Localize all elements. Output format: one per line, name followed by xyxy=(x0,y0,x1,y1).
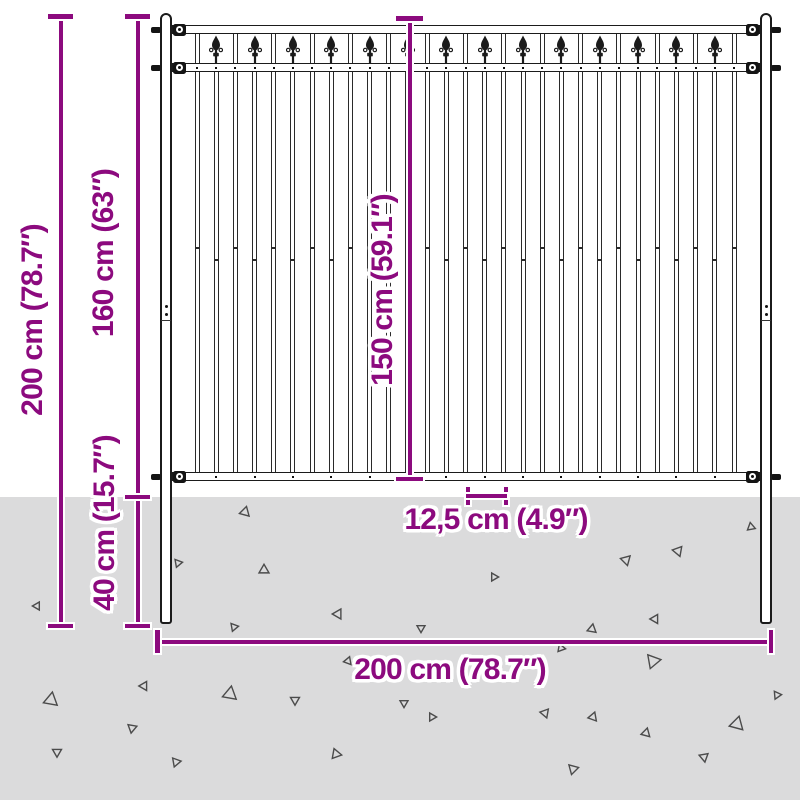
left-post xyxy=(160,13,172,624)
post-hole xyxy=(765,305,768,308)
picket-joint xyxy=(521,259,526,261)
picket-joint xyxy=(290,259,295,261)
picket-joint xyxy=(252,259,257,261)
rail-rivet xyxy=(560,476,562,478)
picket-joint xyxy=(732,247,737,249)
rail-rivet xyxy=(618,67,620,69)
dim-total-height-label: 200 cm (78.7″) xyxy=(18,224,48,416)
main-picket xyxy=(732,34,737,474)
spear-picket xyxy=(597,63,602,474)
rail-rivet xyxy=(695,67,697,69)
post-bracket xyxy=(746,24,759,36)
spear-picket xyxy=(521,63,526,474)
dim-cap xyxy=(125,14,150,19)
spear-picket xyxy=(290,63,295,474)
rail-rivet xyxy=(445,67,447,69)
fence-dimension-diagram: 200 cm (78.7″) 160 cm (63″) 40 cm (15.7″… xyxy=(0,0,800,800)
rail-rivet xyxy=(254,476,256,478)
main-picket xyxy=(693,34,698,474)
rail-rivet xyxy=(656,67,658,69)
main-picket xyxy=(425,34,430,474)
rail-rivet xyxy=(369,476,371,478)
picket-joint xyxy=(233,247,238,249)
spear-finial xyxy=(593,35,607,65)
rail-rivet xyxy=(580,67,582,69)
rail-rivet xyxy=(637,476,639,478)
main-picket xyxy=(540,34,545,474)
spear-finial xyxy=(286,35,300,65)
dim-picket-spacing-label: 12,5 cm (4.9″) xyxy=(404,505,587,535)
spear-picket xyxy=(674,63,679,474)
post-bracket xyxy=(746,471,759,483)
spear-finial xyxy=(248,35,262,65)
picket-joint xyxy=(444,259,449,261)
top-rail xyxy=(172,25,760,34)
picket-joint xyxy=(425,247,430,249)
main-picket xyxy=(310,34,315,474)
picket-joint xyxy=(310,247,315,249)
picket-joint xyxy=(559,259,564,261)
picket-joint xyxy=(693,247,698,249)
picket-joint xyxy=(214,259,219,261)
spear-finial xyxy=(669,35,683,65)
bolt-stub xyxy=(771,27,781,33)
bracket-bolt xyxy=(749,473,756,480)
bracket-bolt xyxy=(176,64,183,71)
spear-finial xyxy=(324,35,338,65)
main-picket xyxy=(578,34,583,474)
picket-joint xyxy=(712,259,717,261)
spear-finial xyxy=(363,35,377,65)
spear-finial xyxy=(708,35,722,65)
bolt-stub xyxy=(771,474,781,480)
bracket-bolt xyxy=(749,64,756,71)
bracket-bolt xyxy=(176,473,183,480)
main-picket xyxy=(233,34,238,474)
spear-picket xyxy=(214,63,219,474)
spear-picket xyxy=(482,63,487,474)
rail-rivet xyxy=(484,476,486,478)
rail-rivet xyxy=(292,67,294,69)
spear-finial xyxy=(209,35,223,65)
dim-cap xyxy=(155,630,160,653)
post-bracket xyxy=(746,62,759,74)
picket-joint xyxy=(271,247,276,249)
rail-rivet xyxy=(484,67,486,69)
rail-rivet xyxy=(234,67,236,69)
spear-picket xyxy=(252,63,257,474)
picket-joint xyxy=(501,247,506,249)
post-hole xyxy=(165,313,168,316)
picket-joint xyxy=(597,259,602,261)
rail-rivet xyxy=(599,476,601,478)
picket-joint xyxy=(616,247,621,249)
spear-picket xyxy=(712,63,717,474)
bracket-bolt xyxy=(176,26,183,33)
rail-rivet xyxy=(503,67,505,69)
dim-cap xyxy=(396,16,423,21)
spear-finial xyxy=(516,35,530,65)
dim-above-ground-label: 160 cm (63″) xyxy=(89,169,119,337)
dim-cap xyxy=(125,624,150,629)
spear-finial xyxy=(478,35,492,65)
rail-rivet xyxy=(426,67,428,69)
dim-cap xyxy=(48,14,73,19)
rail-rivet xyxy=(714,476,716,478)
rail-rivet xyxy=(215,67,217,69)
main-picket xyxy=(271,34,276,474)
dim-panel-height-label: 150 cm (59.1″) xyxy=(368,194,398,386)
post-hole xyxy=(765,313,768,316)
rail-rivet xyxy=(599,67,601,69)
post-seam xyxy=(761,320,771,321)
dim-picket-spacing-line xyxy=(466,494,507,498)
rail-rivet xyxy=(311,67,313,69)
rail-rivet xyxy=(733,67,735,69)
post-bracket xyxy=(173,24,186,36)
main-picket xyxy=(463,34,468,474)
spear-picket xyxy=(559,63,564,474)
picket-joint xyxy=(540,247,545,249)
rail-rivet xyxy=(388,67,390,69)
dim-above-below-line xyxy=(136,14,140,628)
spear-picket xyxy=(636,63,641,474)
dim-total-width-label: 200 cm (78.7″) xyxy=(354,655,546,685)
rail-rivet xyxy=(273,67,275,69)
rail-rivet xyxy=(196,67,198,69)
picket-joint xyxy=(636,259,641,261)
rail-rivet xyxy=(330,67,332,69)
dim-total-height-line xyxy=(59,14,63,628)
rail-rivet xyxy=(254,67,256,69)
rail-rivet xyxy=(445,476,447,478)
main-picket xyxy=(655,34,660,474)
rail-rivet xyxy=(369,67,371,69)
picket-joint xyxy=(348,247,353,249)
picket-joint xyxy=(655,247,660,249)
spear-finial xyxy=(439,35,453,65)
spear-finial xyxy=(554,35,568,65)
right-post xyxy=(760,13,772,624)
post-bracket xyxy=(173,471,186,483)
rail-rivet xyxy=(522,476,524,478)
post-bracket xyxy=(173,62,186,74)
bolt-stub xyxy=(771,65,781,71)
post-seam xyxy=(161,320,171,321)
main-picket xyxy=(195,34,200,474)
rail-rivet xyxy=(349,67,351,69)
dim-total-width-line xyxy=(157,640,772,644)
dim-below-ground-label: 40 cm (15.7″) xyxy=(90,435,120,611)
rail-rivet xyxy=(675,476,677,478)
bottom-rail xyxy=(172,472,760,481)
rail-rivet xyxy=(522,67,524,69)
rail-rivet xyxy=(541,67,543,69)
dim-panel-height-line xyxy=(408,16,412,481)
picket-joint xyxy=(674,259,679,261)
main-picket xyxy=(348,34,353,474)
rail-rivet xyxy=(292,476,294,478)
picket-joint xyxy=(463,247,468,249)
dim-cap xyxy=(396,477,423,482)
spear-picket xyxy=(329,63,334,474)
dim-cap xyxy=(125,495,150,500)
picket-joint xyxy=(482,259,487,261)
spear-finial xyxy=(631,35,645,65)
main-picket xyxy=(501,34,506,474)
rail-rivet xyxy=(330,476,332,478)
picket-joint xyxy=(195,247,200,249)
rail-rivet xyxy=(714,67,716,69)
rail-rivet xyxy=(675,67,677,69)
main-picket xyxy=(616,34,621,474)
dim-cap xyxy=(769,630,774,653)
spear-picket xyxy=(444,63,449,474)
rail-rivet xyxy=(560,67,562,69)
rail-rivet xyxy=(465,67,467,69)
picket-joint xyxy=(329,259,334,261)
rail-rivet xyxy=(215,476,217,478)
rail-rivet xyxy=(637,67,639,69)
bracket-bolt xyxy=(749,26,756,33)
post-hole xyxy=(165,305,168,308)
picket-joint xyxy=(578,247,583,249)
dim-cap xyxy=(48,624,73,629)
